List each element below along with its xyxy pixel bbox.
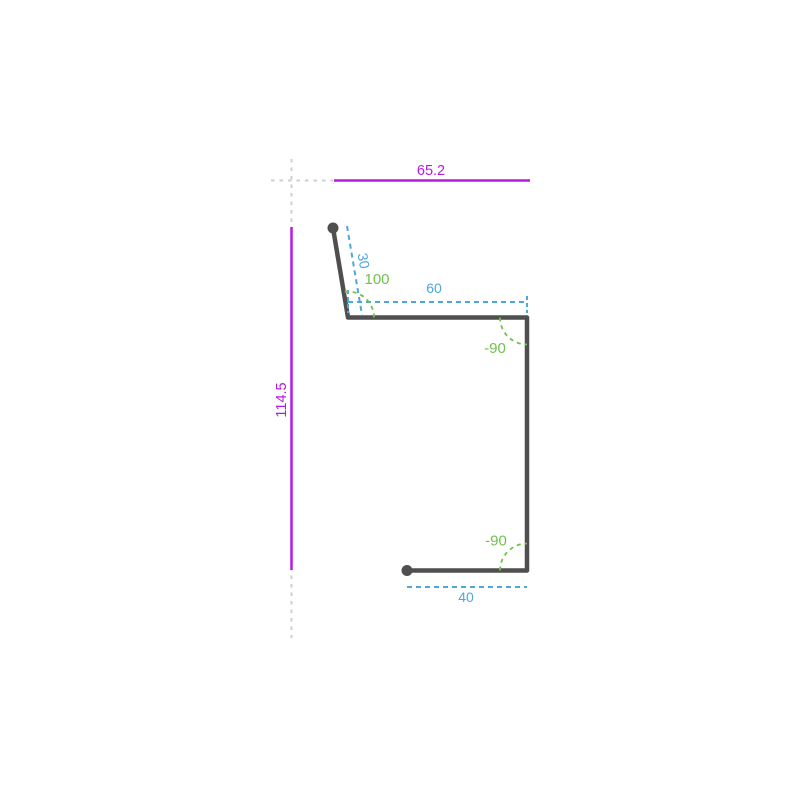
profile-start-dot [328,223,339,234]
overall-height-dimension: 114.5 [274,227,292,570]
segment4-length-label[interactable]: 40 [458,589,474,605]
profile-end-dot [402,565,413,576]
segment1-length-label[interactable]: 30 [355,252,373,270]
profile-outline [328,223,528,577]
bend2-angle-label[interactable]: -90 [484,340,506,357]
drawing-canvas: 65.2 114.5 30 60 40 100 [0,0,800,800]
overall-width-dimension: 65.2 [334,163,530,181]
overall-width-label: 65.2 [417,163,445,179]
overall-height-label: 114.5 [274,382,290,417]
segment2-length-label[interactable]: 60 [426,280,442,296]
flashing-profile-drawing: 65.2 114.5 30 60 40 100 [0,0,800,800]
bend1-angle-label[interactable]: 100 [364,271,389,288]
bend3-angle-label[interactable]: -90 [485,533,507,550]
